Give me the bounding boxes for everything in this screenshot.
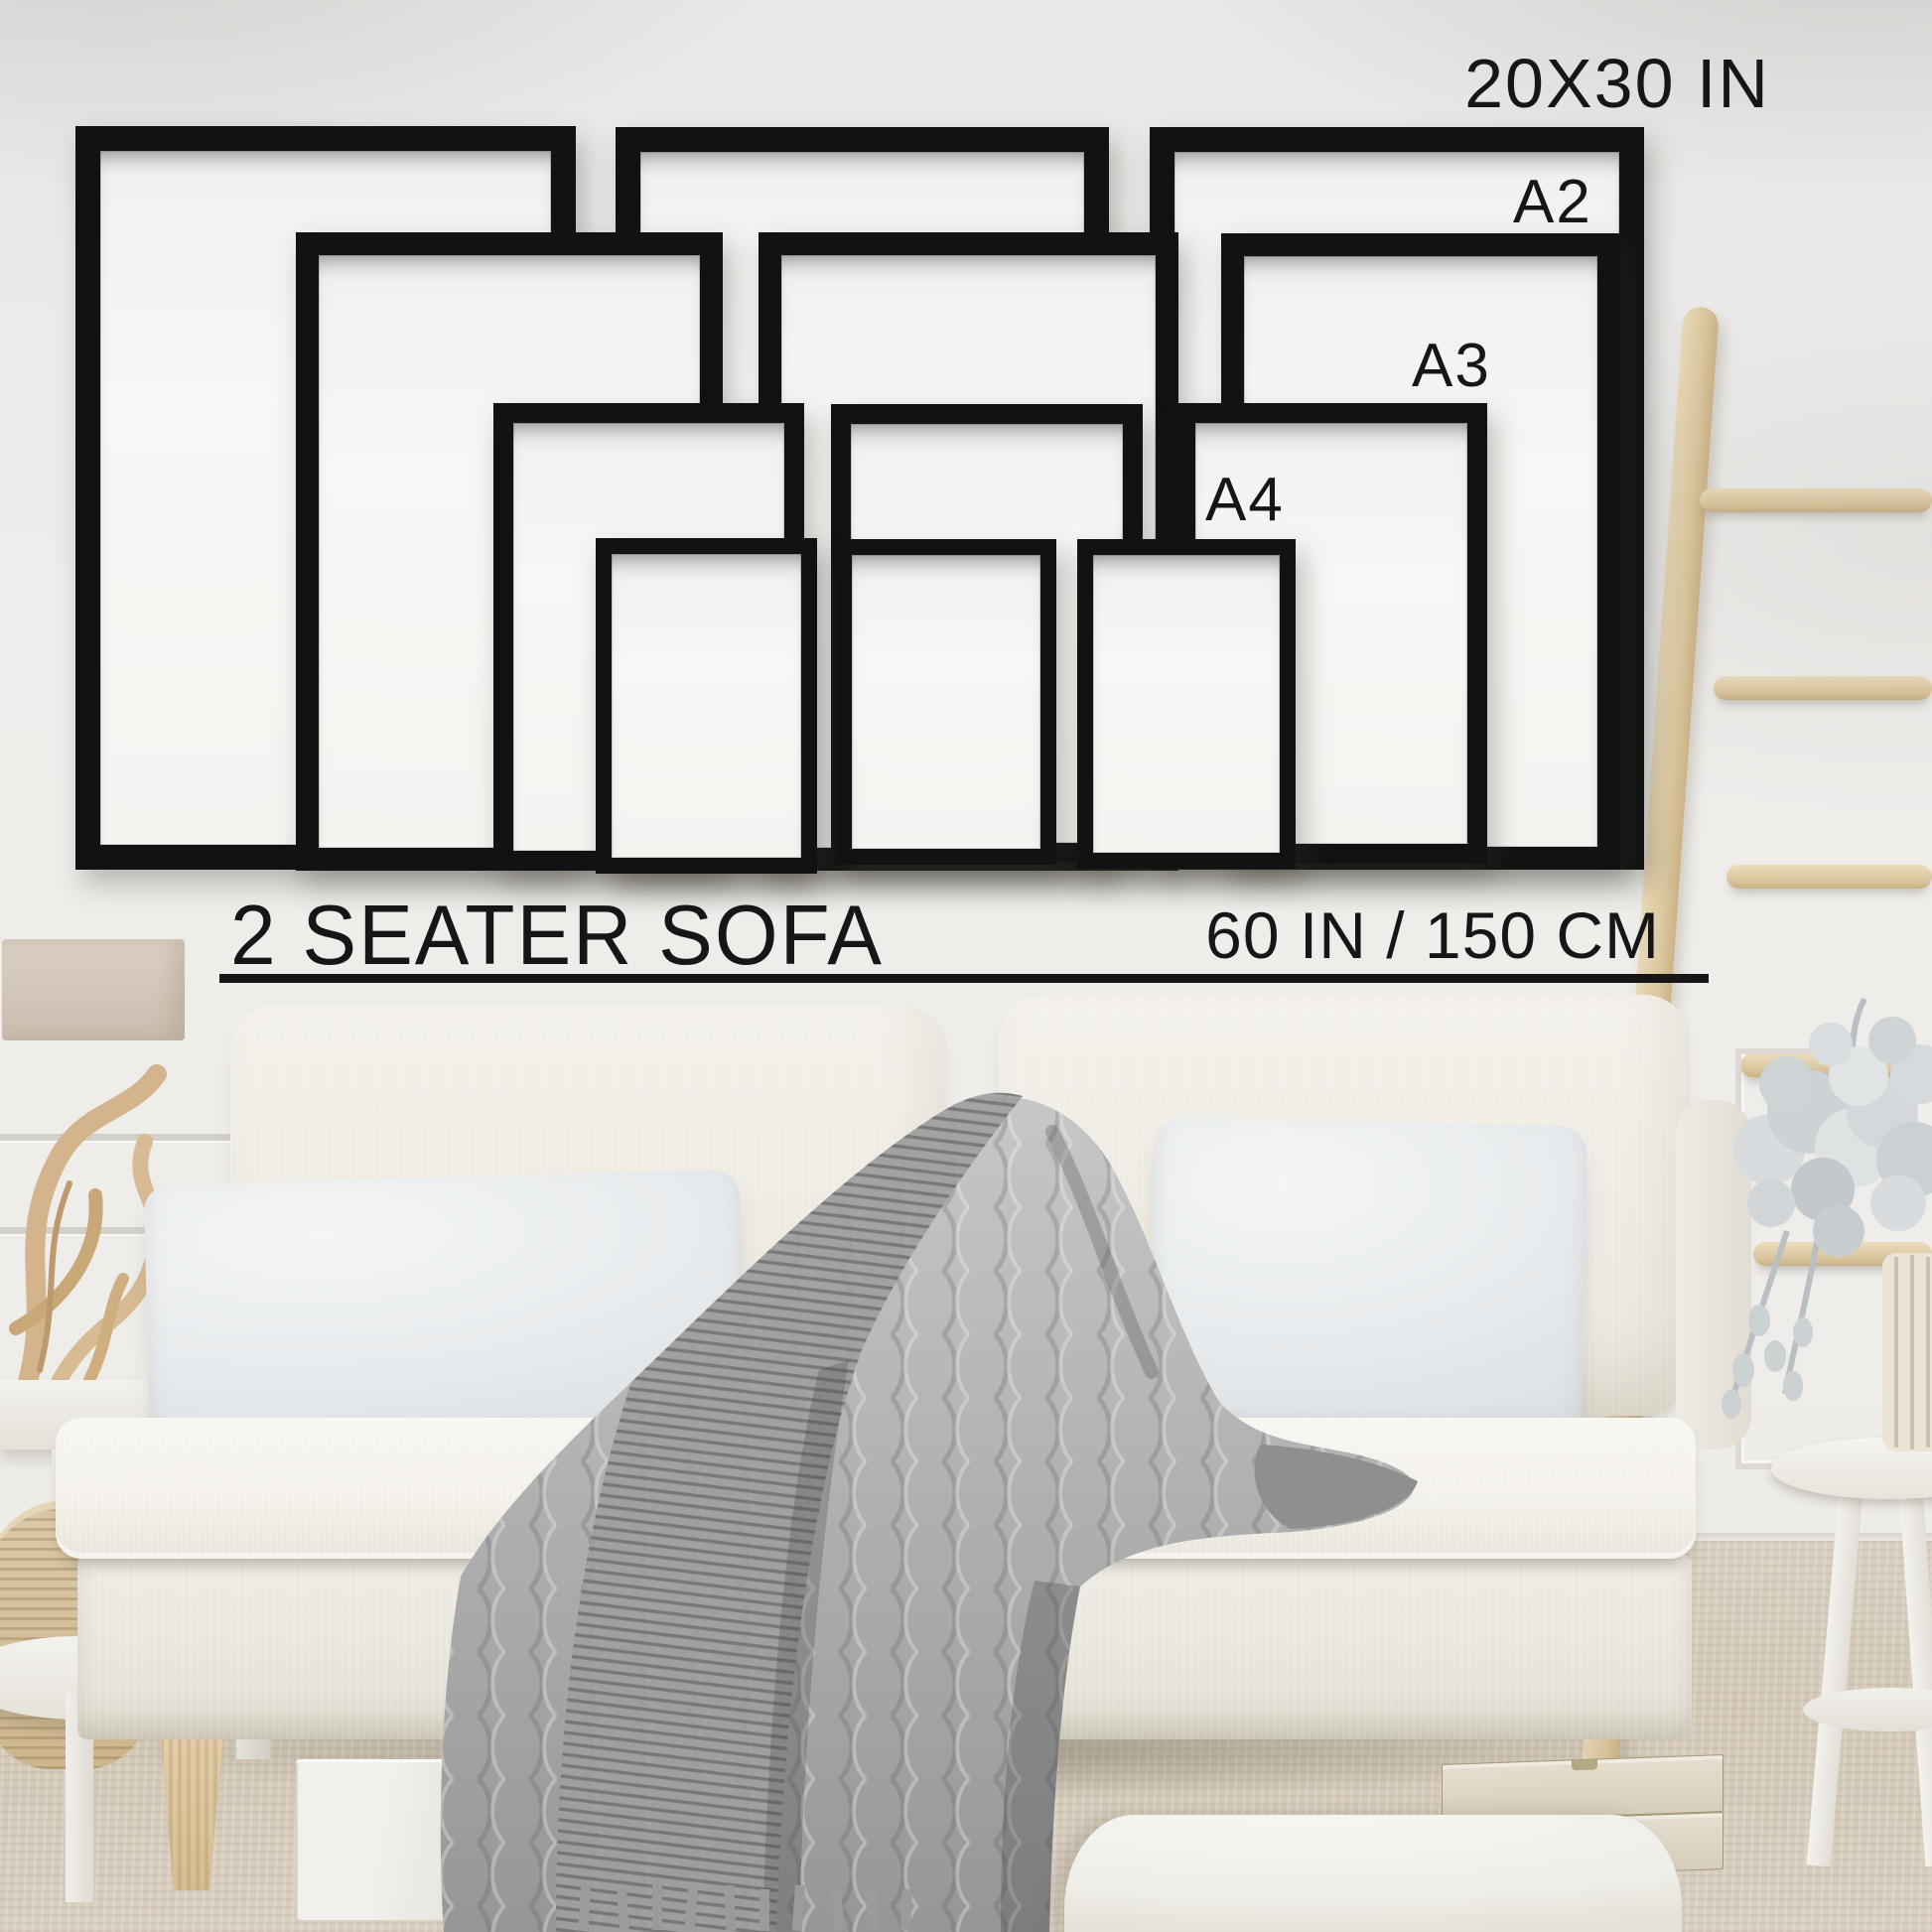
measure-underline xyxy=(219,974,1709,983)
size-label-a3: A3 xyxy=(1412,331,1491,401)
frame-a4-right xyxy=(1077,539,1296,869)
size-guide-scene: 20X30 IN A2 A3 A4 2 SEATER SOFA 60 IN / … xyxy=(0,0,1932,1932)
sofa-base xyxy=(77,1555,1692,1739)
size-label-20x30: 20X30 IN xyxy=(1464,44,1770,123)
frame-a4-left xyxy=(596,538,817,874)
cardboard-box-top xyxy=(1442,1754,1724,1822)
square-pillow xyxy=(1149,1117,1588,1442)
sofa-width-label: 60 IN / 150 CM xyxy=(1162,897,1660,973)
sofa-size-label: 2 SEATER SOFA xyxy=(230,888,884,985)
storage-box-white xyxy=(296,1759,586,1920)
sofa-side-bolster xyxy=(1676,1100,1751,1449)
frame-a4-center xyxy=(836,539,1056,865)
lumbar-pillow xyxy=(143,1170,746,1456)
floor-cushion xyxy=(1064,1815,1682,1932)
size-label-a4: A4 xyxy=(1205,465,1285,535)
size-label-a2: A2 xyxy=(1513,167,1592,237)
sofa-seat-cushion xyxy=(56,1418,1696,1559)
